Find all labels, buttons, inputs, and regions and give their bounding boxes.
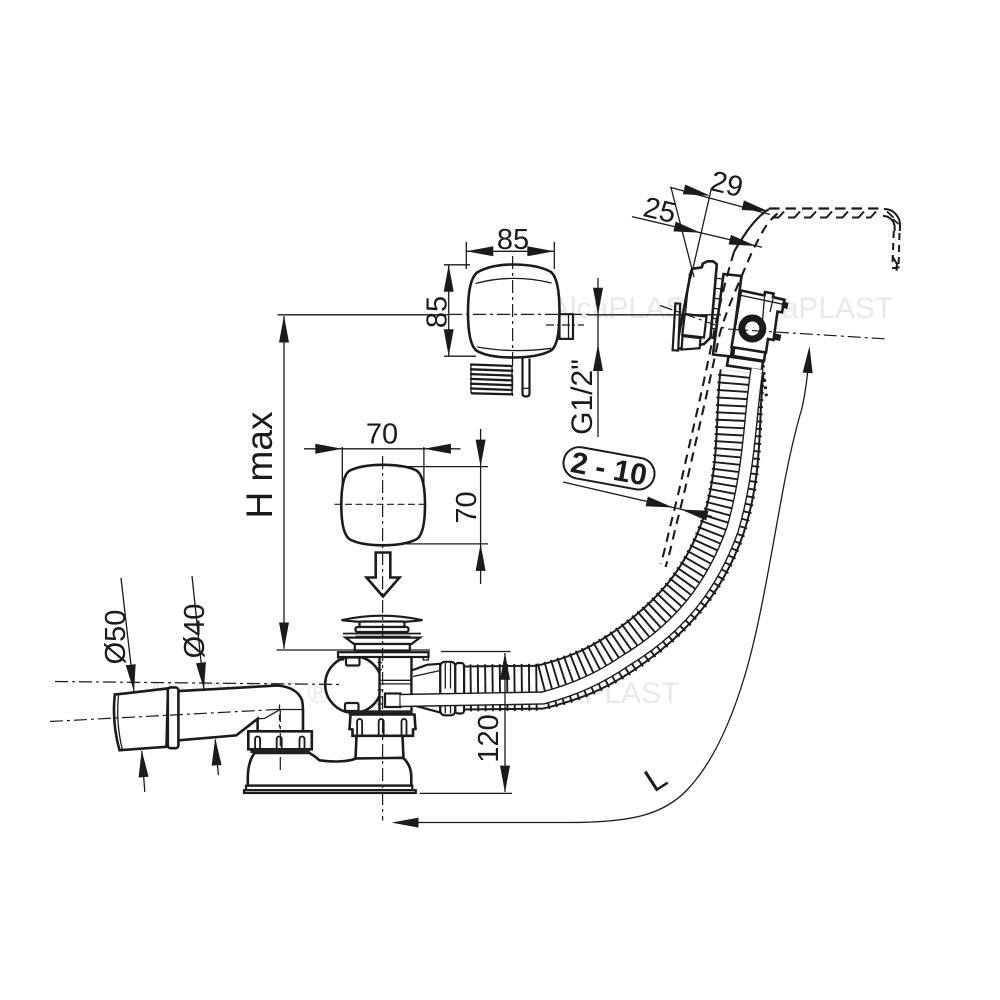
svg-text:85: 85 [422,296,454,328]
svg-text:G1/2": G1/2" [566,359,599,435]
svg-text:70: 70 [451,491,483,523]
svg-text:H max: H max [239,411,280,518]
svg-text:Ø40: Ø40 [179,604,211,659]
svg-text:120: 120 [473,714,505,762]
svg-text:85: 85 [497,224,529,256]
svg-text:Ø50: Ø50 [100,610,132,665]
svg-text:70: 70 [366,419,398,451]
